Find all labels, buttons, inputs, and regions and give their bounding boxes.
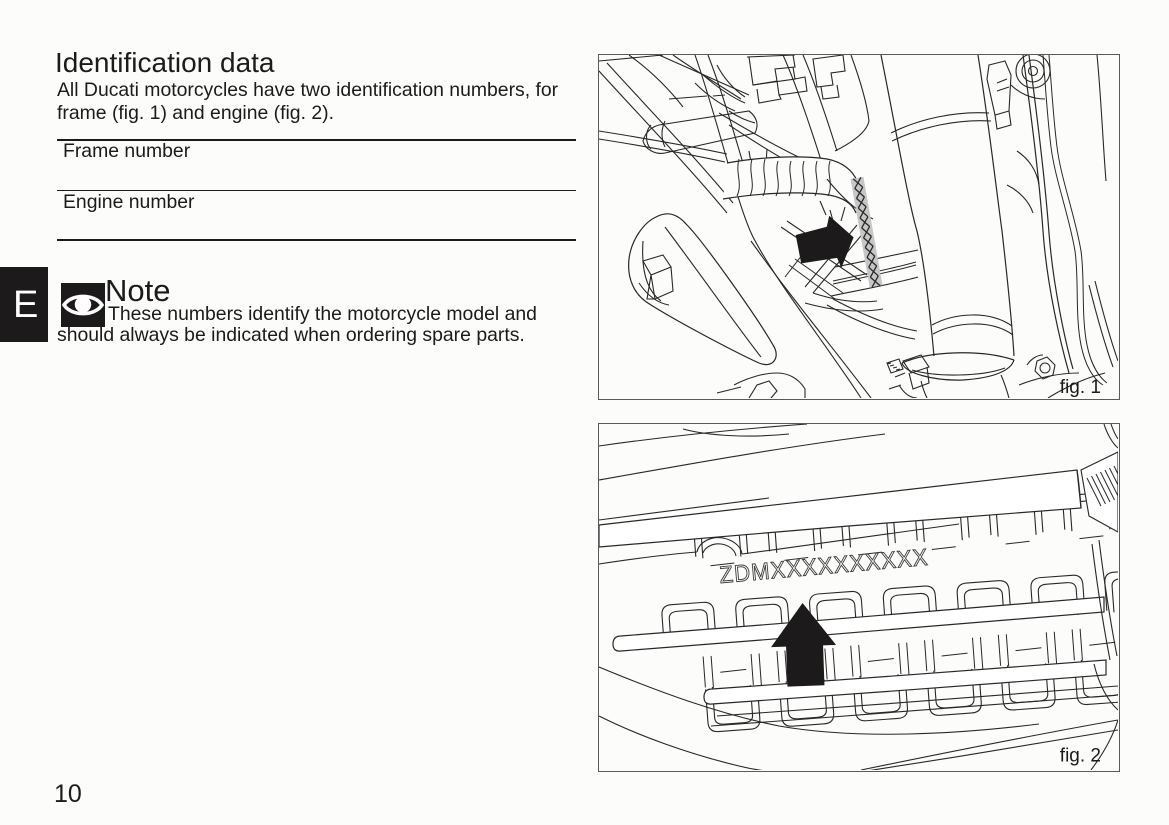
svg-text:fig. 1: fig. 1 (1060, 377, 1101, 398)
svg-text:fig. 2: fig. 2 (1060, 745, 1101, 766)
svg-text:ZDMXXXXXXXXXX: ZDMXXXXXXXXXX (718, 543, 929, 588)
